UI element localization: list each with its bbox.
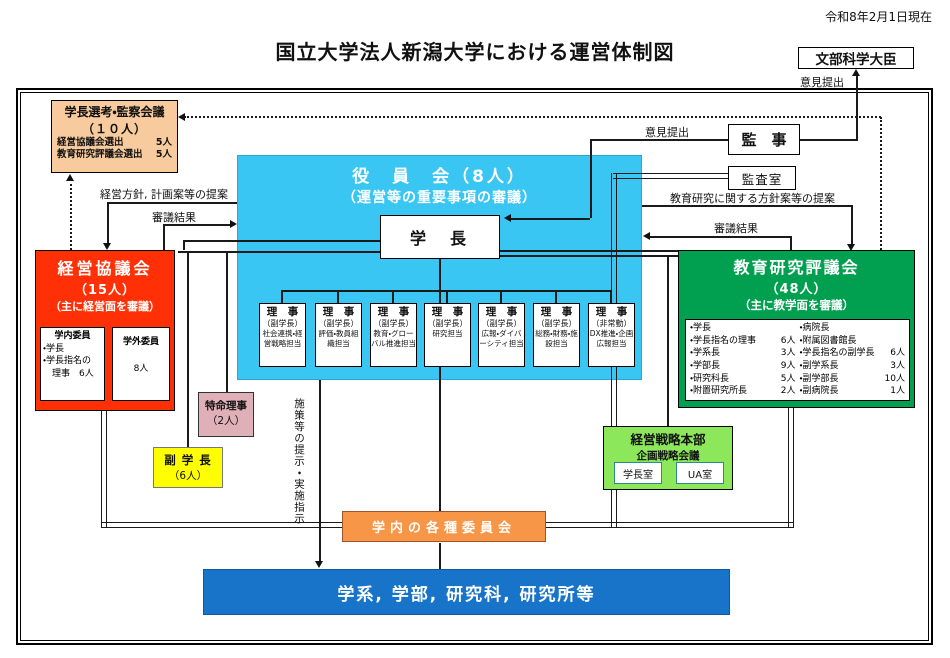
internal-members-box: 学内委員 ・学長 ・学長指名の 理事 6人	[40, 327, 105, 401]
connector-result-left	[163, 224, 165, 250]
member-row: ・学系長3人	[690, 348, 796, 359]
vice-presidents-box: 副 学 長 （6人）	[153, 447, 223, 488]
selection-row: 教育研究評議会選出5人	[57, 149, 172, 161]
connector-mgmt-committees	[101, 411, 107, 527]
education-council-count: （48人）	[679, 278, 914, 297]
internal-members-title: 学内委員	[43, 330, 102, 343]
connector-audit-office	[613, 173, 728, 179]
connector-selection-dotted	[184, 116, 881, 118]
member-row: ・学長	[690, 323, 796, 334]
connector-result-right	[649, 236, 790, 238]
member-row: ・学長指名の副学長6人	[800, 348, 906, 359]
external-members-title: 学外委員	[115, 336, 167, 349]
arrowhead	[852, 69, 860, 76]
connector-selection-dotted	[70, 179, 72, 250]
connector-center-spine	[439, 543, 441, 570]
connector-auditors-president	[510, 218, 590, 220]
connector-mgmt-committees	[101, 522, 346, 528]
president-box: 学 長	[380, 215, 500, 259]
special-director-box: 特命理事 （2人）	[198, 392, 254, 437]
selection-council-count: （１０人）	[57, 120, 172, 137]
page-title: 国立大学法人新潟大学における運営体制図	[0, 36, 950, 65]
director-box: 理 事 （副学長） 社会連携・経営戦略担当	[259, 303, 306, 367]
member-row: ・副学系長3人	[800, 361, 906, 372]
connector-director-drop	[446, 290, 448, 304]
connector-measures	[319, 380, 321, 562]
arrowhead	[643, 232, 650, 240]
internal-members-line: 理事 6人	[43, 368, 102, 381]
external-members-count: 8人	[115, 363, 167, 376]
connector-director-drop	[555, 290, 557, 304]
connector-auditors-president	[590, 139, 592, 218]
member-row: ・学部長9人	[690, 361, 796, 372]
date-note: 令和8年2月1日現在	[825, 8, 932, 25]
connector-auditors-minister	[800, 139, 858, 141]
connector-edu-proposal	[851, 205, 853, 244]
connector-president-edu	[500, 255, 678, 257]
connector-director-drop	[500, 290, 502, 304]
arrowhead	[847, 244, 855, 251]
member-row: ・附属図書館長	[800, 336, 906, 347]
connector-director-drop	[392, 290, 394, 304]
education-council-left-column: ・学長 ・学長指名の理事6人 ・学系長3人 ・学部長9人 ・研究科長5人 ・附置…	[690, 323, 796, 397]
management-council-subtitle: （主に経営面を審議）	[36, 298, 174, 314]
external-members-box: 学外委員 8人	[112, 327, 170, 401]
connector-president-directors	[439, 259, 441, 291]
management-council-title: 経営協議会	[36, 255, 174, 279]
board-title: 役 員 会（8人）	[238, 162, 641, 187]
faculties-box: 学系, 学部, 研究科, 研究所等	[203, 569, 730, 615]
selection-council-title: 学長選考・監察会議	[57, 103, 172, 120]
director-box: 理 事 （副学長） 研究担当	[424, 303, 471, 367]
member-row: ・副学部長10人	[800, 374, 906, 385]
audit-office-box: 監査室	[728, 166, 796, 190]
connector-edu-committees	[546, 522, 794, 528]
mgmt-proposal-label: 経営方針, 計画案等の提案	[100, 186, 228, 202]
director-box: 理 事 （副学長） 総務・財務・施設担当	[533, 303, 580, 367]
connector-selection-dotted	[880, 117, 882, 250]
management-council-count: （15人）	[36, 279, 174, 298]
selection-row: 経営協議会選出5人	[57, 137, 172, 149]
arrowhead	[66, 174, 74, 181]
ua-office-box: UA室	[676, 462, 724, 484]
connector-mgmt-proposal	[107, 202, 237, 204]
connector-edu-committees	[788, 408, 794, 527]
internal-members-line: ・学長指名の	[43, 355, 102, 368]
connector-result-right	[790, 236, 792, 250]
connector-auditors-minister	[856, 72, 858, 139]
opinion-label-top: 意見提出	[800, 74, 844, 90]
strategy-hq-box: 経営戦略本部 企画戦略会議 学長室 UA室	[603, 426, 733, 490]
result-label-right: 審議結果	[714, 220, 758, 236]
connector-mgmt-proposal	[107, 202, 109, 243]
director-box: 理 事 （副学長） 評価・教員組織担当	[315, 303, 362, 367]
connector-president-mgmt	[183, 240, 185, 250]
connector-president-edu	[500, 250, 678, 252]
opinion-label-left: 意見提出	[645, 124, 689, 140]
member-row: ・研究科長5人	[690, 374, 796, 385]
connector-special-director	[226, 251, 228, 393]
management-council-panel: 経営協議会 （15人） （主に経営面を審議） 学内委員 ・学長 ・学長指名の 理…	[35, 250, 175, 411]
arrowhead	[103, 243, 111, 250]
arrowhead	[504, 214, 511, 222]
internal-members-line: ・学長	[43, 343, 102, 356]
director-box: 理 事 （副学長） 広報・ダイバーシティ担当	[478, 303, 525, 367]
education-council-members-box: ・学長 ・学長指名の理事6人 ・学系長3人 ・学部長9人 ・研究科長5人 ・附置…	[685, 319, 910, 401]
member-row: ・副病院長1人	[800, 386, 906, 397]
connector-president-mgmt	[183, 240, 380, 242]
connector-director-drop	[281, 290, 283, 304]
education-council-panel: 教育研究評議会 （48人） （主に教学面を審議） ・学長 ・学長指名の理事6人 …	[678, 250, 915, 408]
auditors-box: 監 事	[728, 124, 800, 155]
member-row: ・病院長	[800, 323, 906, 334]
connector-vice-presidents	[187, 251, 189, 448]
committees-box: 学内の各種委員会	[342, 511, 546, 542]
arrowhead	[178, 113, 185, 121]
connector-president-mgmt	[178, 251, 380, 253]
measures-label: 施策等の提示・実施指示	[292, 398, 307, 532]
member-row: ・学長指名の理事6人	[690, 336, 796, 347]
edu-proposal-label: 教育研究に関する方針案等の提案	[670, 190, 835, 206]
connector-director-drop	[610, 290, 612, 304]
education-council-title: 教育研究評議会	[679, 254, 914, 278]
connector-director-drop	[337, 290, 339, 304]
director-box: 理 事 （副学長） 教育・グローバル推進担当	[370, 303, 417, 367]
member-row: ・附置研究所長2人	[690, 386, 796, 397]
president-office-box: 学長室	[614, 462, 662, 484]
org-chart-canvas: 令和8年2月1日現在 国立大学法人新潟大学における運営体制図 文部科学大臣 役 …	[0, 0, 950, 658]
arrowhead	[230, 220, 237, 228]
education-council-right-column: ・病院長 ・附属図書館長 ・学長指名の副学長6人 ・副学系長3人 ・副学部長10…	[800, 323, 906, 397]
connector-strategy-hq	[667, 255, 669, 427]
arrowhead	[315, 561, 323, 568]
selection-council-box: 学長選考・監察会議 （１０人） 経営協議会選出5人 教育研究評議会選出5人	[51, 100, 178, 173]
director-box: 理 事 （非常勤） DX推進・企画広報担当	[588, 303, 635, 367]
result-label-left: 審議結果	[152, 209, 196, 225]
education-council-subtitle: （主に教学面を審議）	[679, 297, 914, 313]
board-subtitle: （運営等の重要事項の審議）	[238, 187, 641, 207]
